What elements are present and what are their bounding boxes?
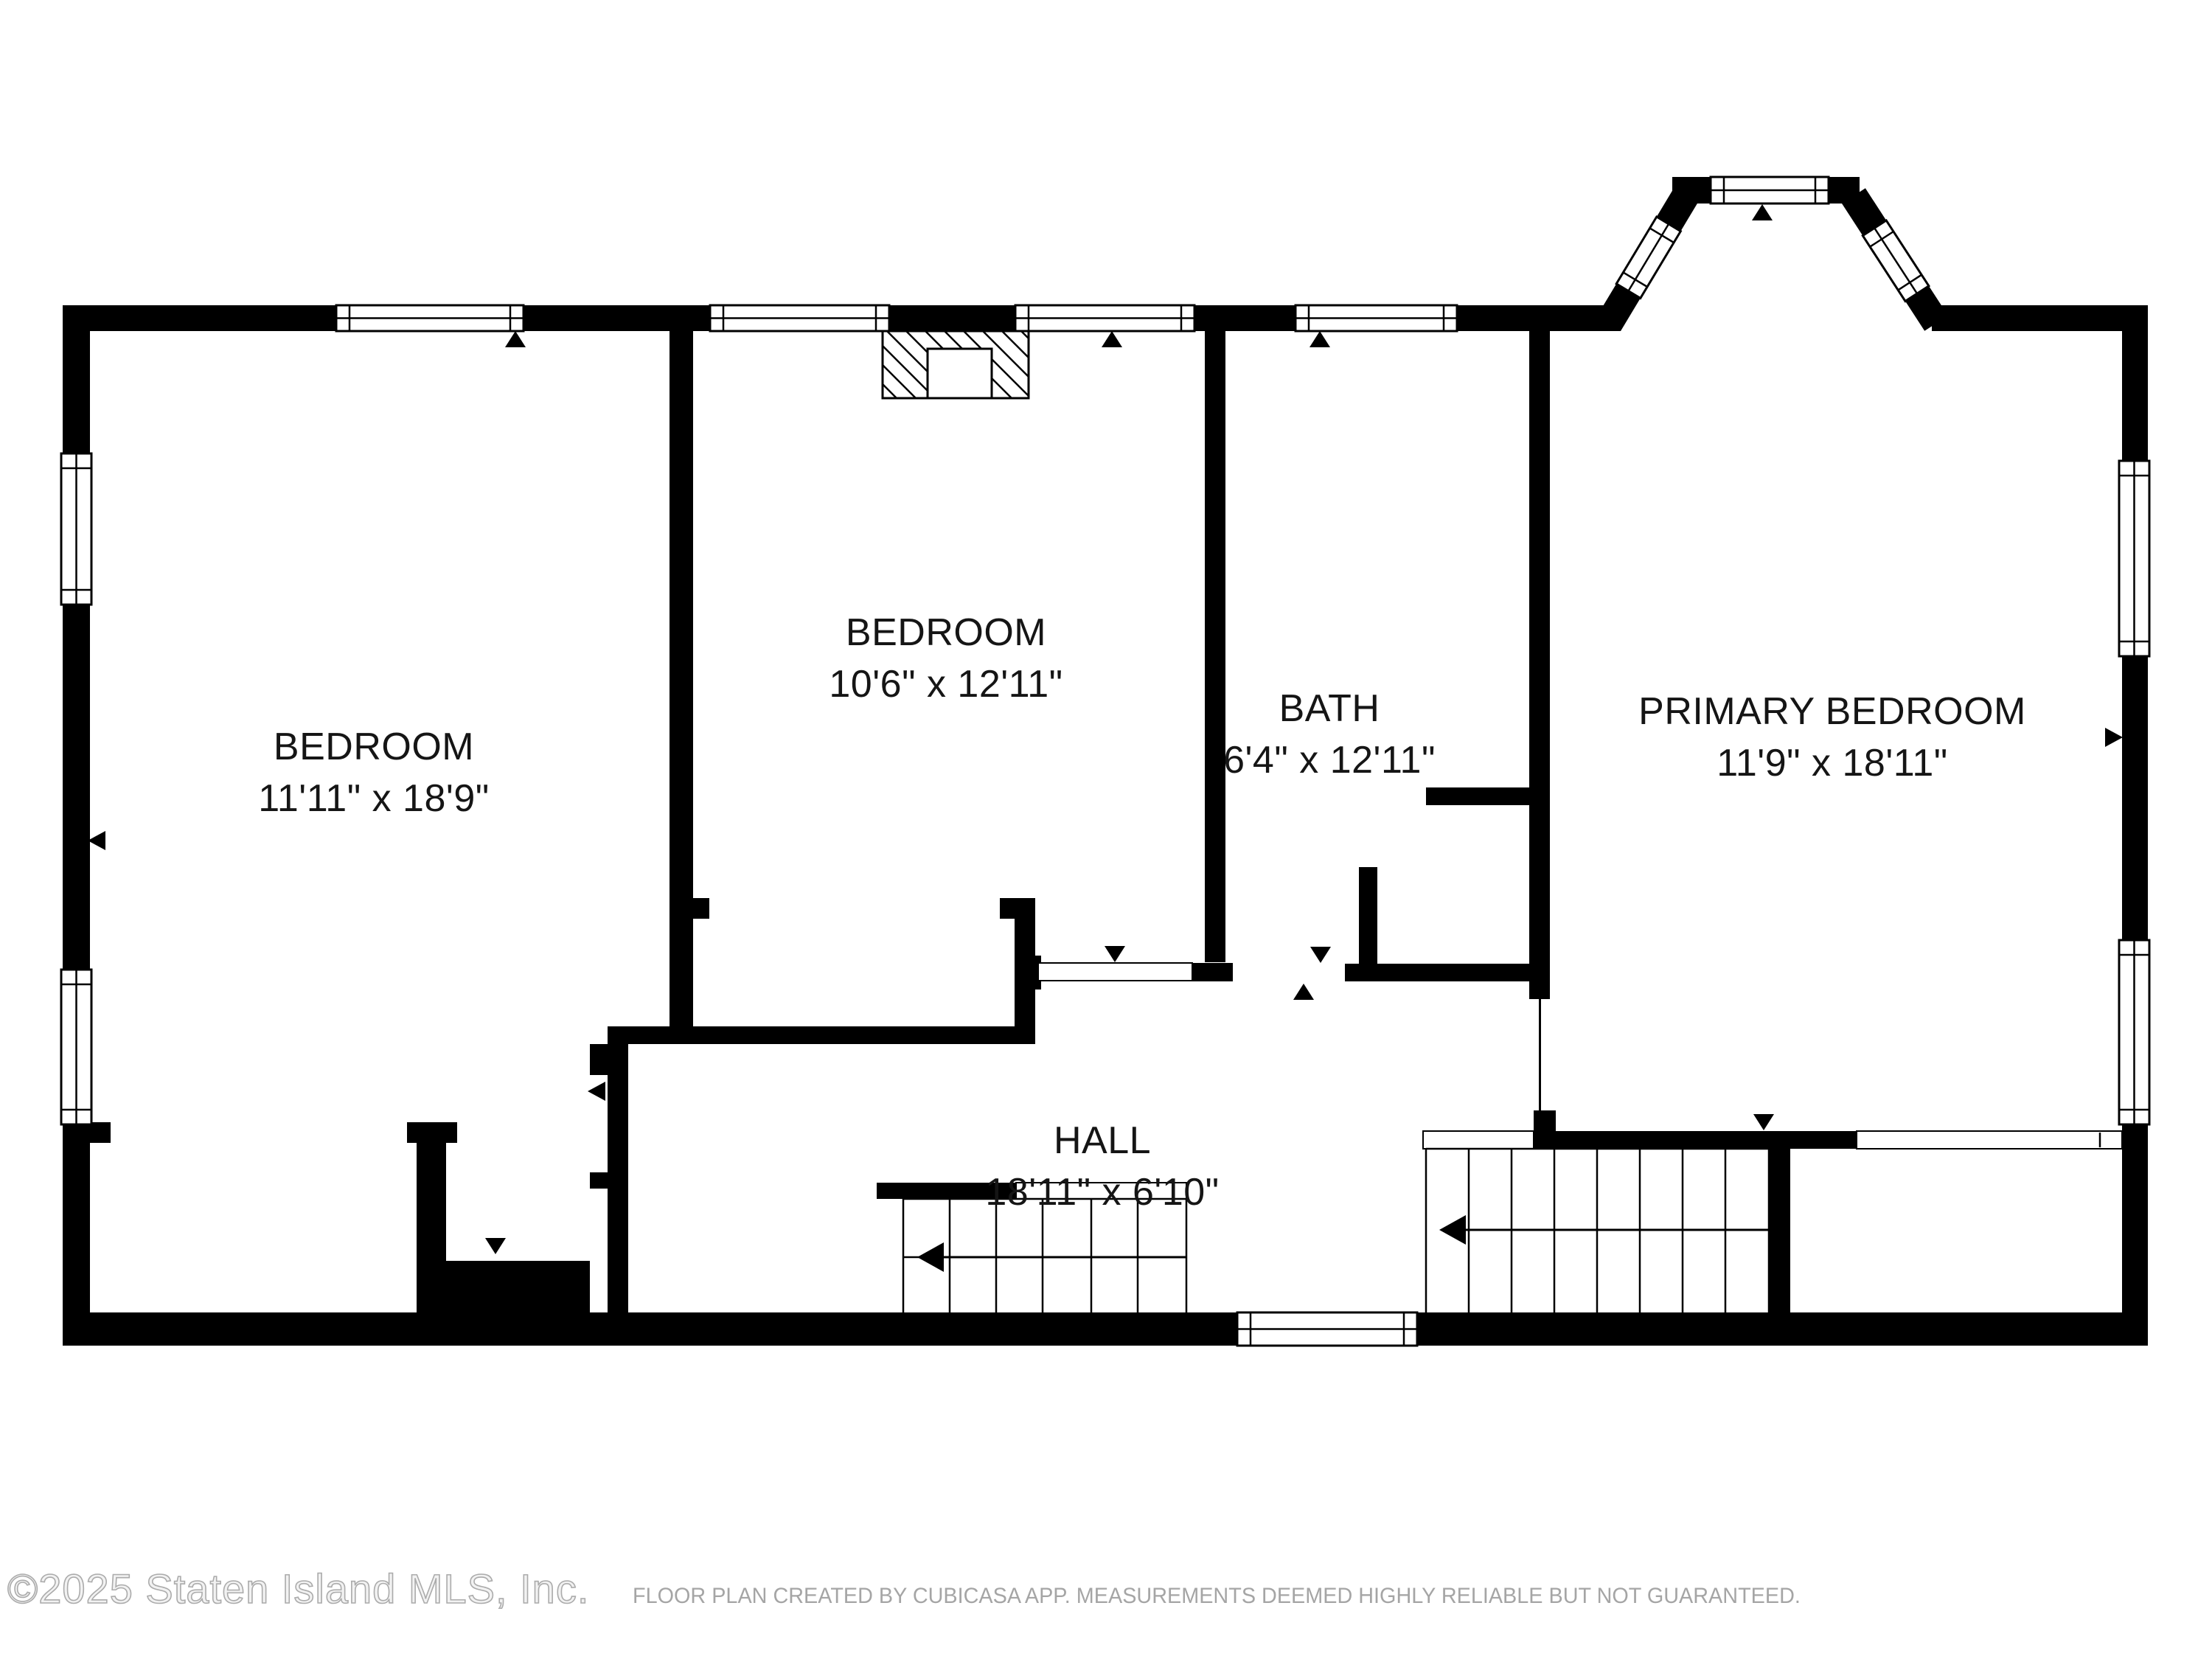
room-name: PRIMARY BEDROOM <box>1638 686 2026 737</box>
wall <box>90 1122 111 1143</box>
opening-marker-icon <box>1752 204 1773 220</box>
wall <box>407 1122 457 1143</box>
room-label-primary-bedroom: PRIMARY BEDROOM 11'9" x 18'11" <box>1638 686 2026 789</box>
room-label-bedroom-2: BEDROOM 10'6" x 12'11" <box>829 607 1062 710</box>
disclaimer-text: FLOOR PLAN CREATED BY CUBICASA APP. MEAS… <box>633 1584 1801 1609</box>
wall <box>1534 1131 1857 1149</box>
opening-marker-icon <box>88 831 105 850</box>
bay-window-wall <box>1596 187 1699 331</box>
wall <box>1932 305 2148 331</box>
room-dimensions: 11'11" x 18'9" <box>258 773 489 824</box>
room-name: BEDROOM <box>829 607 1062 658</box>
room-name: BEDROOM <box>258 721 489 773</box>
wall <box>692 898 709 919</box>
wall <box>669 331 693 1043</box>
wall <box>1769 1149 1790 1312</box>
wall <box>1539 999 1541 1110</box>
room-name: HALL <box>985 1115 1219 1166</box>
wall <box>1205 331 1225 962</box>
wall <box>1345 964 1536 981</box>
doorway-opening <box>1038 963 1192 981</box>
wall <box>417 1143 446 1312</box>
opening-marker-icon <box>1310 947 1331 963</box>
opening-marker-icon <box>1753 1114 1774 1130</box>
wall <box>1359 867 1377 964</box>
wall <box>590 1172 608 1189</box>
wall <box>1426 787 1532 805</box>
wall <box>1000 898 1035 919</box>
room-label-bath: BATH 6'4" x 12'11" <box>1223 683 1436 786</box>
opening-marker-icon <box>505 331 526 347</box>
room-label-hall: HALL 18'11" x 6'10" <box>985 1115 1219 1218</box>
opening-marker-icon <box>485 1238 506 1254</box>
stair-arrow-head-icon <box>917 1242 944 1272</box>
room-name: BATH <box>1223 683 1436 734</box>
opening-marker-icon <box>2105 728 2123 747</box>
room-dimensions: 10'6" x 12'11" <box>829 658 1062 710</box>
opening-marker-icon <box>1293 984 1314 1000</box>
floor-plan-drawing <box>0 0 2212 1659</box>
wall <box>1192 963 1233 981</box>
wall <box>63 1312 2148 1346</box>
wall <box>446 1261 590 1312</box>
doorway-opening <box>1423 1131 1534 1149</box>
opening-marker-icon <box>1310 331 1330 347</box>
footer: ©2025 Staten Island MLS, Inc. FLOOR PLAN… <box>0 1554 2212 1643</box>
stair-arrow-head-icon <box>1439 1215 1466 1245</box>
bay-window-wall <box>1842 188 1948 330</box>
room-dimensions: 18'11" x 6'10" <box>985 1166 1219 1218</box>
opening-marker-icon <box>588 1082 605 1101</box>
opening-marker-icon <box>1105 946 1125 962</box>
wall <box>1529 331 1550 999</box>
floor-plan-page: BEDROOM 11'11" x 18'9" BEDROOM 10'6" x 1… <box>0 0 2212 1659</box>
room-dimensions: 11'9" x 18'11" <box>1638 737 2026 789</box>
wall <box>590 1044 628 1075</box>
chimney-flue <box>928 349 992 398</box>
copyright-watermark: ©2025 Staten Island MLS, Inc. <box>7 1565 589 1613</box>
room-label-bedroom-1: BEDROOM 11'11" x 18'9" <box>258 721 489 824</box>
room-dimensions: 6'4" x 12'11" <box>1223 734 1436 786</box>
wall <box>608 1026 1032 1044</box>
opening-marker-icon <box>1102 331 1122 347</box>
doorway-opening <box>1857 1131 2122 1149</box>
wall <box>1534 1110 1556 1131</box>
wall <box>608 1044 628 1312</box>
